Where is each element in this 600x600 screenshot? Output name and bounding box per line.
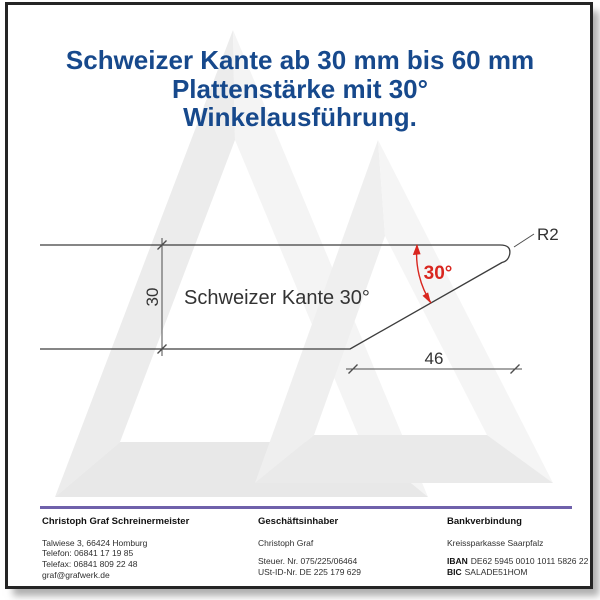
company-fax: Telefax: 06841 809 22 48 xyxy=(42,559,242,570)
bank-bic-line: BICSALADE51HOM xyxy=(447,567,597,578)
bic-value: SALADE51HOM xyxy=(465,567,528,577)
owner-tax-number: Steuer. Nr. 075/225/06464 xyxy=(258,556,438,567)
owner-vat-number: USt-ID-Nr. DE 225 179 629 xyxy=(258,567,438,578)
width-dimension-label: 46 xyxy=(425,349,444,368)
bank-name: Kreissparkasse Saarpfalz xyxy=(447,538,597,549)
radius-label: R2 xyxy=(537,225,559,244)
company-name-heading: Christoph Graf Schreinermeister xyxy=(42,517,242,528)
footer-company-column: Christoph Graf Schreinermeister Talwiese… xyxy=(42,517,242,581)
datasheet-page: Schweizer Kante ab 30 mm bis 60 mm Platt… xyxy=(0,0,600,600)
angle-arrow-bottom xyxy=(423,292,432,303)
owner-name: Christoph Graf xyxy=(258,538,438,549)
owner-heading: Geschäftsinhaber xyxy=(258,517,438,528)
company-phone: Telefon: 06841 17 19 85 xyxy=(42,548,242,559)
footer-separator xyxy=(40,506,572,509)
bank-heading: Bankverbindung xyxy=(447,517,597,528)
company-email: graf@grafwerk.de xyxy=(42,570,242,581)
iban-value: DE62 5945 0010 1011 5826 22 xyxy=(471,556,589,566)
footer-bank-column: Bankverbindung Kreissparkasse Saarpfalz … xyxy=(447,517,597,578)
iban-label: IBAN xyxy=(447,556,468,566)
bic-label: BIC xyxy=(447,567,462,577)
technical-drawing: 30 46 30° R2 Schweizer Kante 30° xyxy=(0,0,600,600)
thickness-dimension-label: 30 xyxy=(143,288,162,307)
bank-iban-line: IBANDE62 5945 0010 1011 5826 22 xyxy=(447,556,597,567)
radius-leader-line xyxy=(514,234,534,247)
profile-label: Schweizer Kante 30° xyxy=(184,287,370,309)
footer-owner-column: Geschäftsinhaber Christoph Graf Steuer. … xyxy=(258,517,438,578)
angle-label: 30° xyxy=(424,263,453,284)
company-address: Talwiese 3, 66424 Homburg xyxy=(42,538,242,549)
